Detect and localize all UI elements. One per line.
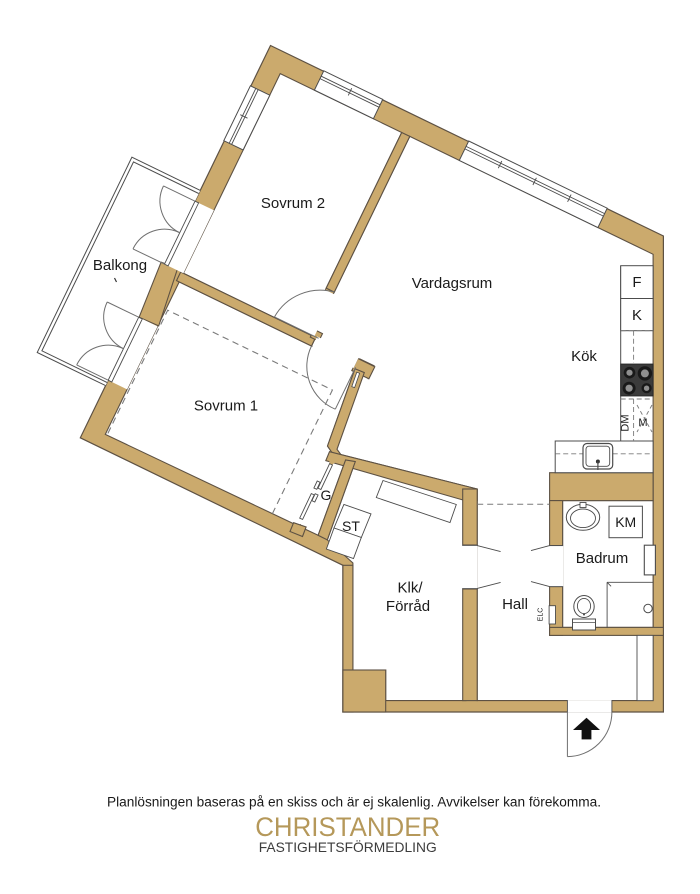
svg-text:Sovrum 2: Sovrum 2	[261, 195, 325, 212]
svg-text:KM: KM	[615, 514, 636, 530]
svg-text:M: M	[638, 417, 647, 429]
svg-text:Klk/: Klk/	[397, 580, 423, 597]
svg-text:ST: ST	[342, 518, 360, 534]
svg-text:CHRISTANDER: CHRISTANDER	[255, 812, 440, 842]
svg-text:Förråd: Förråd	[386, 598, 430, 615]
svg-text:Balkong: Balkong	[93, 257, 147, 274]
svg-text:Badrum: Badrum	[576, 550, 629, 567]
svg-text:Planlösningen baseras på en sk: Planlösningen baseras på en skiss och är…	[107, 795, 601, 810]
svg-text:Kök: Kök	[571, 348, 597, 365]
svg-text:Vardagsrum: Vardagsrum	[412, 275, 493, 292]
svg-text:K: K	[632, 307, 642, 324]
svg-text:Sovrum 1: Sovrum 1	[194, 398, 258, 415]
svg-text:DM: DM	[620, 414, 632, 431]
svg-text:Hall: Hall	[502, 596, 528, 613]
svg-text:FASTIGHETSFÖRMEDLING: FASTIGHETSFÖRMEDLING	[259, 838, 437, 855]
svg-text:ELC: ELC	[538, 608, 545, 622]
svg-text:G: G	[321, 487, 332, 503]
svg-text:F: F	[632, 274, 641, 291]
